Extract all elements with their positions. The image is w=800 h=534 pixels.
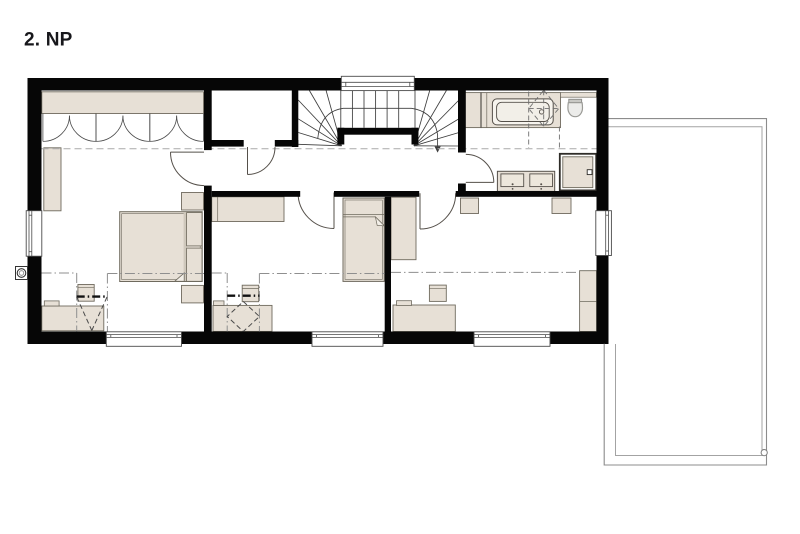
svg-text:2. NP: 2. NP [24, 30, 73, 51]
